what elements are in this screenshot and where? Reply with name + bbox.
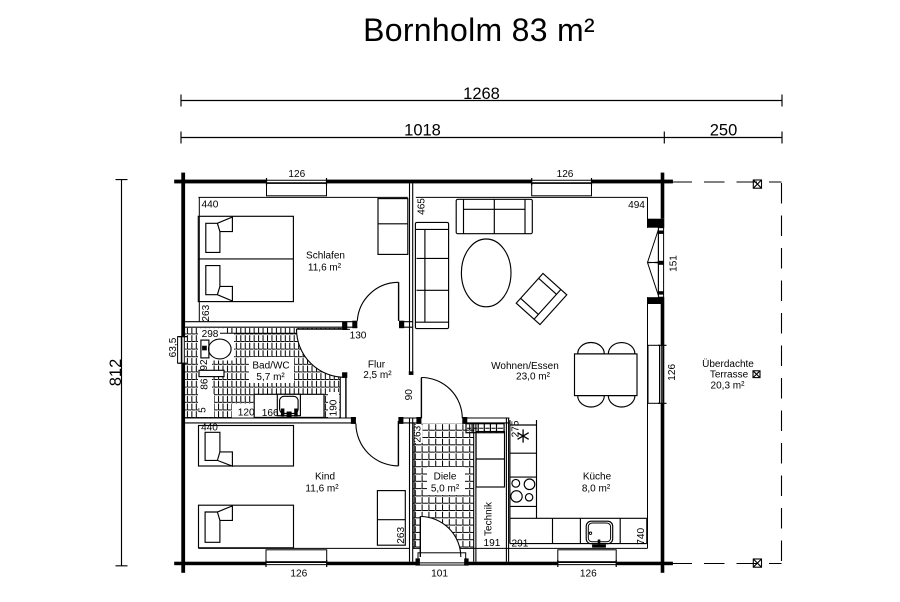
svg-text:20,3 m²: 20,3 m² — [711, 380, 746, 391]
svg-text:90: 90 — [404, 389, 415, 401]
svg-text:494: 494 — [628, 200, 645, 211]
svg-text:298: 298 — [202, 329, 219, 340]
svg-text:5,0 m²: 5,0 m² — [431, 483, 460, 494]
svg-text:275: 275 — [510, 420, 521, 437]
svg-text:Bornholm 83 m²: Bornholm 83 m² — [363, 12, 595, 48]
svg-text:92: 92 — [199, 359, 210, 371]
svg-text:126: 126 — [288, 169, 305, 180]
svg-text:1268: 1268 — [463, 85, 500, 103]
svg-text:Diele: Diele — [434, 471, 457, 482]
svg-text:11,6 m²: 11,6 m² — [308, 262, 342, 273]
svg-text:130: 130 — [350, 331, 367, 342]
svg-text:250: 250 — [710, 122, 738, 140]
svg-text:740: 740 — [636, 527, 647, 544]
svg-text:Bad/WC: Bad/WC — [252, 360, 289, 371]
svg-text:263: 263 — [201, 304, 212, 321]
svg-text:11,6 m²: 11,6 m² — [305, 483, 339, 494]
svg-text:5,7 m²: 5,7 m² — [256, 372, 285, 383]
svg-text:126: 126 — [580, 569, 597, 580]
svg-text:Schlafen: Schlafen — [306, 250, 345, 261]
svg-text:8,0 m²: 8,0 m² — [582, 484, 611, 495]
svg-text:120: 120 — [238, 408, 255, 419]
svg-text:263: 263 — [412, 425, 423, 442]
svg-text:Kind: Kind — [315, 471, 335, 482]
svg-text:Küche: Küche — [583, 472, 612, 483]
svg-text:Überdachte: Überdachte — [702, 358, 754, 370]
svg-text:Wohnen/Essen: Wohnen/Essen — [491, 361, 559, 372]
svg-text:126: 126 — [667, 363, 678, 380]
svg-text:126: 126 — [290, 569, 307, 580]
svg-text:440: 440 — [201, 423, 218, 434]
svg-text:465: 465 — [417, 198, 428, 215]
svg-text:1018: 1018 — [404, 122, 441, 140]
svg-text:5: 5 — [198, 407, 209, 413]
svg-text:126: 126 — [557, 169, 574, 180]
svg-text:2,5 m²: 2,5 m² — [363, 370, 392, 381]
svg-text:151: 151 — [669, 255, 680, 272]
svg-text:166: 166 — [262, 408, 279, 419]
svg-text:101: 101 — [431, 568, 448, 579]
svg-text:440: 440 — [201, 199, 218, 210]
svg-text:Technik: Technik — [484, 501, 495, 536]
svg-text:Flur: Flur — [368, 359, 386, 370]
svg-text:263: 263 — [396, 526, 407, 543]
svg-text:812: 812 — [107, 359, 125, 387]
svg-text:86: 86 — [199, 378, 210, 390]
svg-text:23,0 m²: 23,0 m² — [516, 372, 551, 383]
svg-text:190: 190 — [328, 399, 339, 416]
svg-text:191: 191 — [483, 538, 500, 549]
svg-text:Terrasse: Terrasse — [710, 369, 749, 380]
svg-text:63,5: 63,5 — [168, 337, 179, 357]
svg-text:291: 291 — [511, 538, 528, 549]
